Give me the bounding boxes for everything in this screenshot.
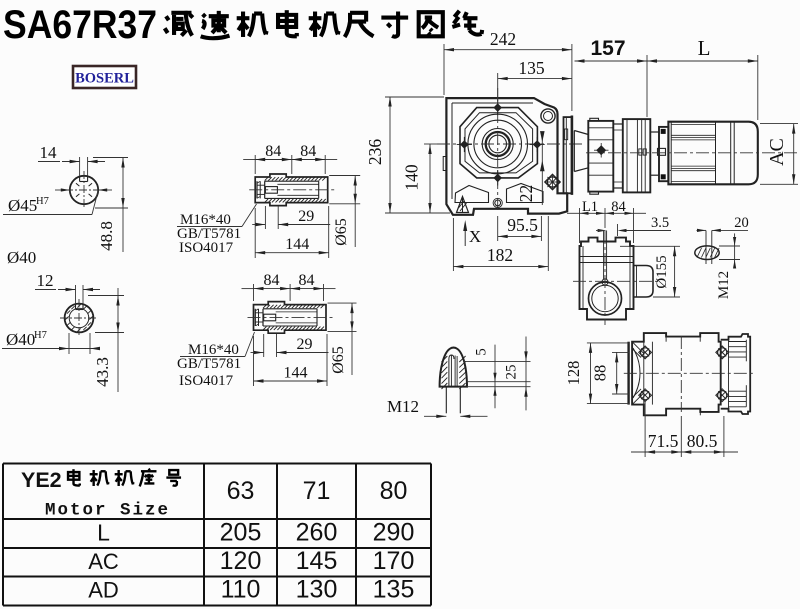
svg-text:84: 84: [300, 143, 316, 160]
svg-text:Ø40: Ø40: [7, 248, 36, 267]
svg-text:AC: AC: [88, 549, 119, 574]
svg-text:140: 140: [402, 164, 422, 191]
svg-text:95.5: 95.5: [507, 215, 538, 235]
svg-text:3.5: 3.5: [651, 215, 669, 231]
svg-text:144: 144: [284, 365, 308, 382]
svg-text:AD: AD: [88, 578, 119, 603]
svg-text:80: 80: [380, 477, 408, 505]
svg-text:29: 29: [297, 336, 313, 353]
svg-text:135: 135: [518, 58, 545, 78]
svg-text:H7: H7: [36, 196, 49, 207]
svg-text:20: 20: [734, 215, 749, 231]
svg-text:88: 88: [591, 365, 610, 382]
svg-text:14: 14: [40, 143, 58, 162]
svg-text:Ø40: Ø40: [6, 330, 35, 349]
svg-text:128: 128: [564, 361, 583, 386]
svg-text:260: 260: [296, 519, 338, 547]
svg-text:BOSERL: BOSERL: [75, 71, 134, 87]
svg-text:135: 135: [373, 576, 415, 604]
svg-text:L: L: [97, 520, 110, 546]
svg-text:M12: M12: [387, 397, 419, 416]
svg-text:71: 71: [303, 477, 331, 505]
svg-text:242: 242: [490, 29, 516, 49]
svg-text:22: 22: [516, 185, 536, 203]
svg-text:Ø65: Ø65: [333, 218, 350, 246]
svg-text:5: 5: [474, 348, 490, 356]
svg-text:AC: AC: [766, 138, 788, 166]
svg-text:12: 12: [37, 271, 54, 290]
svg-text:48.8: 48.8: [97, 221, 116, 251]
svg-text:144: 144: [285, 236, 309, 253]
svg-text:84: 84: [299, 272, 315, 289]
svg-text:290: 290: [373, 519, 415, 547]
svg-text:170: 170: [373, 547, 415, 575]
svg-text:145: 145: [296, 547, 338, 575]
svg-text:120: 120: [220, 547, 262, 575]
svg-text:43.3: 43.3: [93, 357, 112, 387]
svg-text:SA67R37: SA67R37: [3, 3, 157, 47]
svg-text:130: 130: [296, 576, 338, 604]
svg-text:25: 25: [504, 365, 520, 380]
svg-text:M12: M12: [716, 271, 732, 299]
svg-text:Motor Size: Motor Size: [45, 501, 170, 521]
svg-text:84: 84: [265, 143, 281, 160]
svg-text:205: 205: [220, 519, 262, 547]
svg-text:80.5: 80.5: [687, 431, 718, 451]
svg-text:GB/T5781: GB/T5781: [177, 356, 241, 372]
svg-text:H7: H7: [34, 330, 47, 341]
svg-text:L1: L1: [582, 199, 598, 215]
svg-text:63: 63: [227, 477, 255, 505]
svg-text:84: 84: [264, 272, 280, 289]
svg-text:L: L: [698, 36, 711, 60]
svg-text:ISO4017: ISO4017: [179, 373, 234, 389]
svg-text:29: 29: [298, 208, 314, 225]
svg-text:X: X: [469, 227, 481, 246]
svg-text:Ø45: Ø45: [8, 196, 37, 215]
svg-text:YE2: YE2: [21, 468, 62, 492]
svg-text:157: 157: [590, 37, 625, 60]
svg-text:Ø65: Ø65: [330, 346, 347, 374]
svg-text:182: 182: [487, 245, 513, 265]
svg-text:236: 236: [365, 139, 385, 166]
svg-text:84: 84: [611, 199, 626, 215]
svg-text:110: 110: [221, 576, 261, 604]
svg-text:71.5: 71.5: [648, 431, 679, 451]
svg-text:Ø155: Ø155: [654, 255, 670, 288]
svg-text:ISO4017: ISO4017: [179, 240, 234, 256]
